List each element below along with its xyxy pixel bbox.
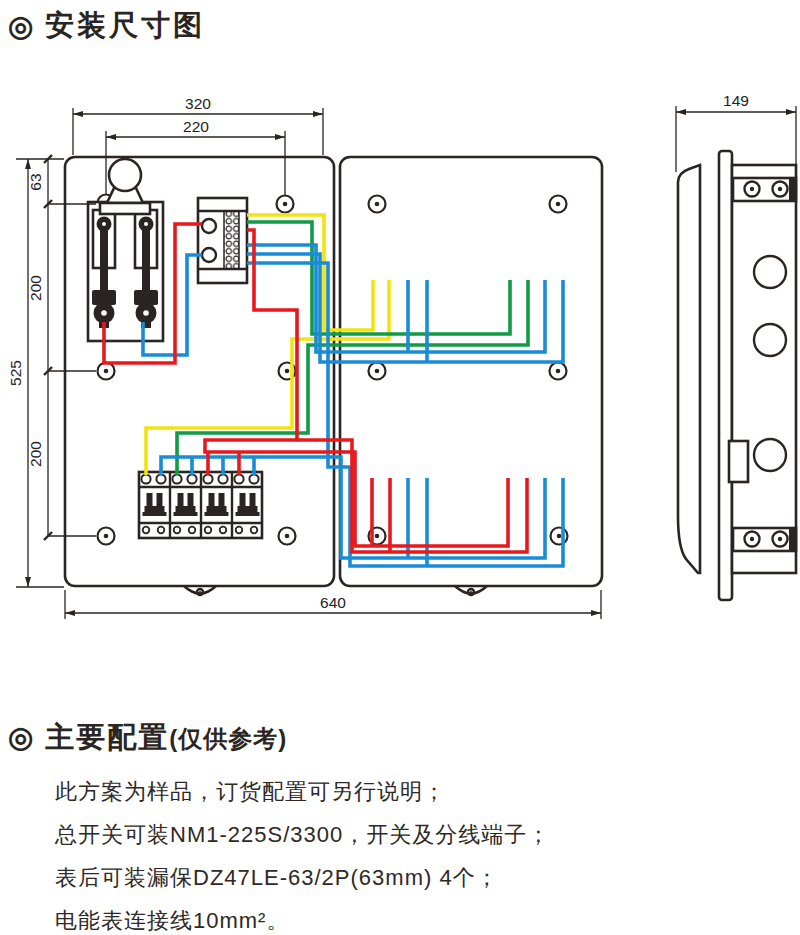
mounting-hole (279, 528, 296, 545)
dim-label-63: 63 (27, 173, 44, 190)
side-door (678, 165, 700, 573)
breaker-group (139, 472, 262, 538)
mounting-hole (369, 196, 386, 213)
dim-label-200-upper: 200 (27, 275, 44, 301)
config-line: 电能表连接线10mm²。 (55, 899, 792, 935)
config-line: 总开关可装NM1-225S/3300，开关及分线端子； (55, 813, 792, 856)
dim-label-220: 220 (183, 118, 209, 135)
config-line: 表后可装漏保DZ47LE-63/2P(63mm) 4个； (55, 856, 792, 899)
dimension-front-height: 525 (7, 159, 64, 587)
side-body (732, 165, 796, 573)
installation-diagram: 320 220 525 (0, 0, 800, 680)
mounting-hole (277, 196, 294, 213)
terminal-strip (224, 211, 239, 269)
front-view: 320 220 525 (7, 95, 602, 619)
config-lines: 此方案为样品，订货配置可另行说明； 总开关可装NM1-225S/3300，开关及… (55, 770, 792, 935)
mounting-hole (550, 363, 567, 380)
dimension-depth: 149 (676, 92, 796, 172)
installation-diagram-svg: 320 220 525 (0, 0, 800, 680)
side-latch (729, 441, 748, 482)
dim-label-149: 149 (723, 92, 749, 109)
terminal-block (198, 198, 247, 283)
section-bullet-icon: ◎ (8, 723, 33, 752)
side-bracket-top (733, 178, 796, 201)
side-mounting-rail (719, 151, 732, 600)
mounting-hole (551, 528, 568, 545)
config-heading-note: (仅供参考) (169, 725, 287, 752)
lid-notch-right (455, 586, 487, 595)
dimension-total-width: 640 (65, 590, 601, 619)
catalog-page: ◎ 安装尺寸图 (0, 0, 800, 935)
mounting-hole (98, 363, 115, 380)
config-heading-row: ◎ 主要配置(仅供参考) (8, 718, 792, 758)
mounting-hole (98, 528, 115, 545)
side-view: 149 (676, 92, 796, 600)
dim-label-640: 640 (320, 594, 346, 611)
dim-label-525: 525 (7, 360, 24, 386)
mounting-hole (550, 196, 567, 213)
config-section: ◎ 主要配置(仅供参考) 此方案为样品，订货配置可另行说明； 总开关可装NM1-… (8, 718, 792, 935)
dim-label-320: 320 (185, 95, 211, 112)
config-heading: 主要配置 (45, 721, 169, 753)
config-line: 此方案为样品，订货配置可另行说明； (55, 770, 792, 813)
lid-notch-left (184, 586, 216, 595)
side-bracket-bottom (733, 528, 796, 551)
dim-label-200-lower: 200 (27, 441, 44, 467)
mounting-hole (369, 363, 386, 380)
